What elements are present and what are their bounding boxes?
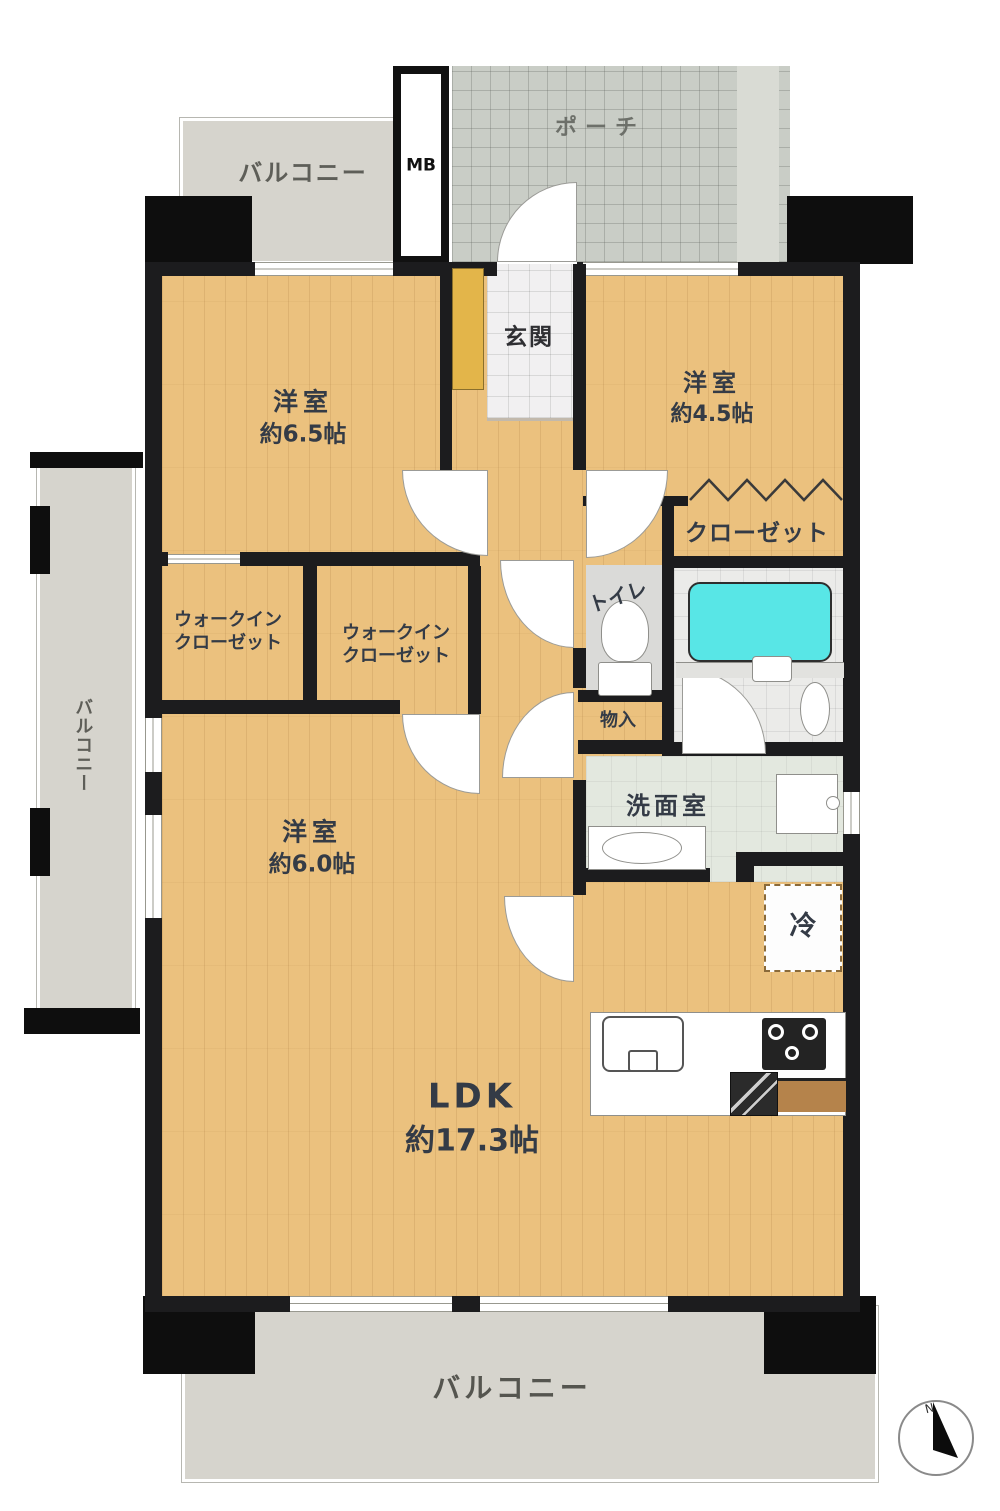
- structural-pillar-top-left: [145, 196, 252, 264]
- ldk-name: LDK: [428, 1077, 516, 1117]
- wic-east-label: ウォークイン クローゼット: [342, 623, 450, 668]
- wall: [145, 552, 168, 566]
- washing-machine-faucet: [826, 796, 840, 810]
- wall: [440, 264, 452, 470]
- wall: [145, 918, 162, 1312]
- wall: [468, 700, 481, 714]
- wall: [662, 556, 845, 568]
- wall: [145, 262, 162, 718]
- wall: [303, 566, 317, 714]
- wall: [662, 505, 674, 754]
- wic-west-line2: クローゼット: [174, 632, 282, 653]
- window: [290, 1296, 452, 1312]
- wall: [240, 552, 480, 566]
- floor-plan: バルコニー MB ポーチ 玄関 洋室 約6.5帖 洋室 約4.5帖 クローゼット…: [0, 0, 1000, 1511]
- bedroom-ne-name: 洋室: [683, 369, 741, 397]
- wall: [573, 648, 586, 688]
- bathtub: [688, 582, 832, 662]
- compass: N: [894, 1396, 978, 1480]
- wall: [145, 772, 162, 815]
- bedroom-sw-size: 約6.0帖: [269, 852, 356, 878]
- stove: [762, 1018, 826, 1070]
- window: [843, 792, 860, 834]
- bath-faucet-deck: [752, 656, 792, 682]
- wic-east-line1: ウォークイン: [342, 623, 450, 644]
- balcony-left-label: バルコニー: [71, 698, 94, 793]
- ldk-label: LDK 約17.3帖: [405, 1076, 539, 1161]
- bedroom-sw-name: 洋室: [282, 818, 342, 847]
- kitchen-console: [730, 1072, 778, 1116]
- wic-west-label: ウォークイン クローゼット: [174, 610, 282, 655]
- wall: [742, 852, 846, 866]
- wall: [468, 566, 481, 714]
- wic-east-line2: クローゼット: [342, 645, 450, 666]
- balcony-left-pillar-upper: [30, 506, 50, 574]
- wall: [452, 1296, 480, 1312]
- closet-label: クローゼット: [685, 520, 829, 549]
- shoe-cabinet: [452, 268, 484, 390]
- wall: [578, 740, 662, 754]
- porch-step: [737, 66, 779, 262]
- window: [583, 262, 738, 276]
- wall: [145, 1296, 290, 1312]
- balcony-left-pillar-lower: [30, 808, 50, 876]
- entrance-label: 玄関: [504, 324, 554, 353]
- meter-box-label: MB: [406, 155, 436, 176]
- sliding-door: [168, 554, 240, 564]
- toilet-fixture-tank: [598, 662, 652, 696]
- shower-stand: [800, 682, 830, 736]
- bedroom-nw-size: 約6.5帖: [260, 422, 347, 448]
- bedroom-nw-label: 洋室 約6.5帖: [260, 387, 347, 450]
- wall: [573, 264, 586, 470]
- porch-label: ポーチ: [555, 114, 645, 142]
- bedroom-sw-label: 洋室 約6.0帖: [269, 817, 356, 880]
- structural-pillar-top-right: [787, 196, 913, 264]
- wall: [738, 262, 860, 276]
- window: [255, 262, 393, 276]
- storage-label: 物入: [600, 710, 636, 733]
- stove-burner: [785, 1046, 799, 1060]
- kitchen-counter-edge: [778, 1078, 846, 1112]
- balcony-top-label: バルコニー: [238, 158, 368, 188]
- window: [480, 1296, 668, 1312]
- kitchen-sink-handle: [628, 1050, 658, 1072]
- bedroom-ne-size: 約4.5帖: [671, 402, 754, 427]
- wic-west-line1: ウォークイン: [174, 610, 282, 631]
- wall: [578, 868, 710, 882]
- closet-folding-doors: [688, 476, 845, 504]
- wall: [668, 1296, 860, 1312]
- balcony-bottom-label: バルコニー: [432, 1371, 591, 1406]
- balcony-left-bottom-stub: [24, 1008, 140, 1034]
- ldk-size: 約17.3帖: [405, 1123, 539, 1158]
- stove-burner: [768, 1024, 784, 1040]
- window: [145, 718, 162, 772]
- bedroom-nw-name: 洋室: [273, 388, 333, 417]
- vanity-basin: [602, 832, 682, 864]
- bedroom-ne-label: 洋室 約4.5帖: [671, 368, 754, 429]
- washroom-label: 洗面室: [626, 791, 710, 821]
- wall: [843, 262, 860, 792]
- refrigerator-label: 冷: [790, 910, 817, 944]
- balcony-left-top-stub: [30, 452, 143, 468]
- window: [145, 815, 162, 918]
- wall: [145, 700, 400, 714]
- stove-burner: [802, 1024, 818, 1040]
